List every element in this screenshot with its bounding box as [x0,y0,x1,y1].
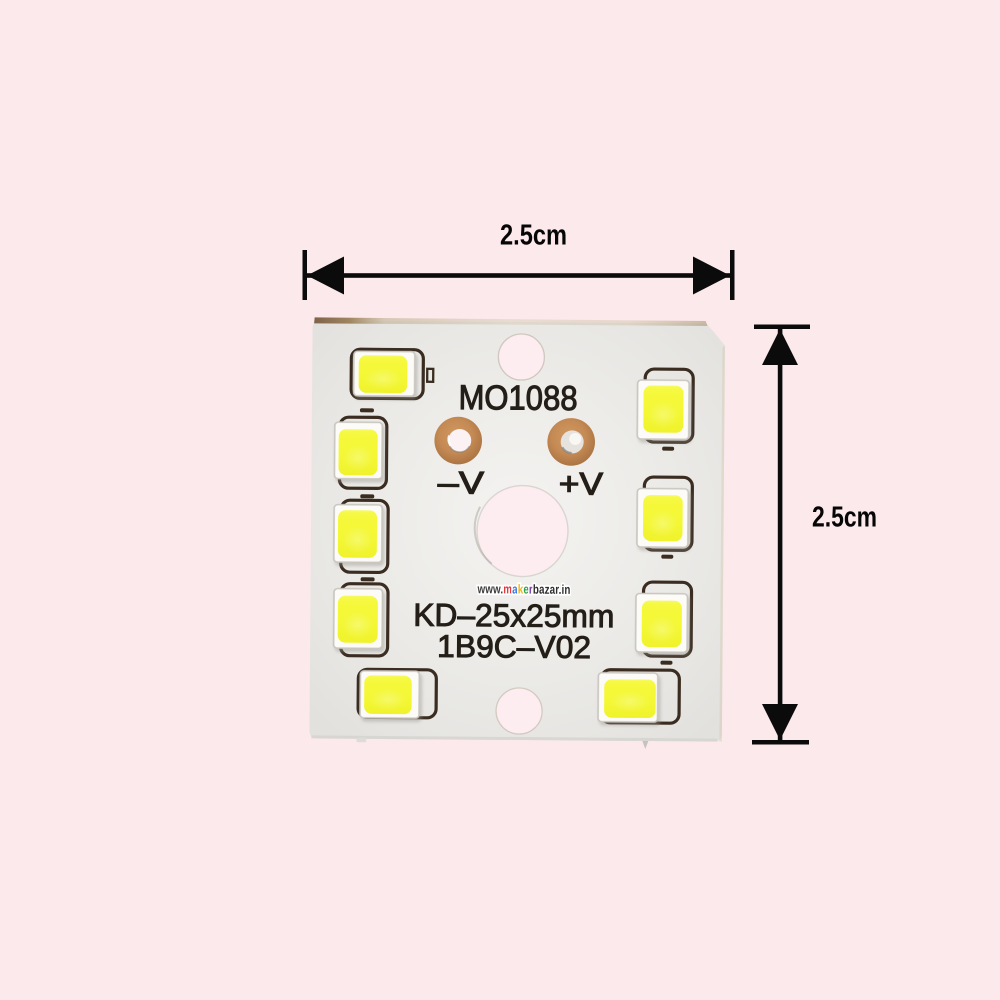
svg-text:2.5cm: 2.5cm [500,220,567,252]
svg-text:1B9C–V02: 1B9C–V02 [437,628,591,665]
svg-text:2.5cm: 2.5cm [812,502,877,534]
svg-text:MO1088: MO1088 [458,379,577,418]
svg-text:+V: +V [559,465,603,501]
svg-text:www.makerbazar.in: www.makerbazar.in [477,581,571,597]
svg-text:–V: –V [438,464,484,500]
